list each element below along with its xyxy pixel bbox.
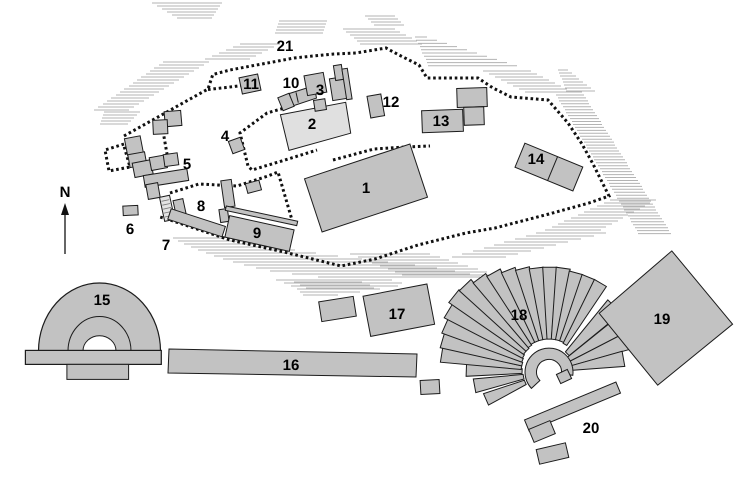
svg-text:1: 1: [362, 180, 370, 197]
svg-text:7: 7: [162, 237, 170, 254]
svg-text:9: 9: [253, 225, 261, 242]
svg-text:3: 3: [316, 82, 324, 99]
svg-text:N: N: [60, 184, 71, 201]
svg-text:11: 11: [243, 76, 259, 93]
svg-text:8: 8: [197, 198, 205, 215]
svg-text:12: 12: [383, 94, 400, 111]
svg-text:2: 2: [308, 116, 316, 133]
svg-text:13: 13: [433, 113, 450, 130]
svg-text:17: 17: [389, 306, 406, 323]
svg-text:16: 16: [283, 357, 300, 374]
svg-text:5: 5: [183, 156, 191, 173]
svg-text:18: 18: [511, 307, 528, 324]
svg-text:4: 4: [221, 128, 230, 145]
svg-text:21: 21: [277, 38, 294, 55]
svg-text:6: 6: [126, 221, 134, 238]
svg-text:15: 15: [94, 292, 111, 309]
svg-text:14: 14: [528, 151, 545, 168]
svg-text:20: 20: [583, 420, 600, 437]
svg-text:10: 10: [283, 75, 300, 92]
svg-text:19: 19: [654, 311, 671, 328]
